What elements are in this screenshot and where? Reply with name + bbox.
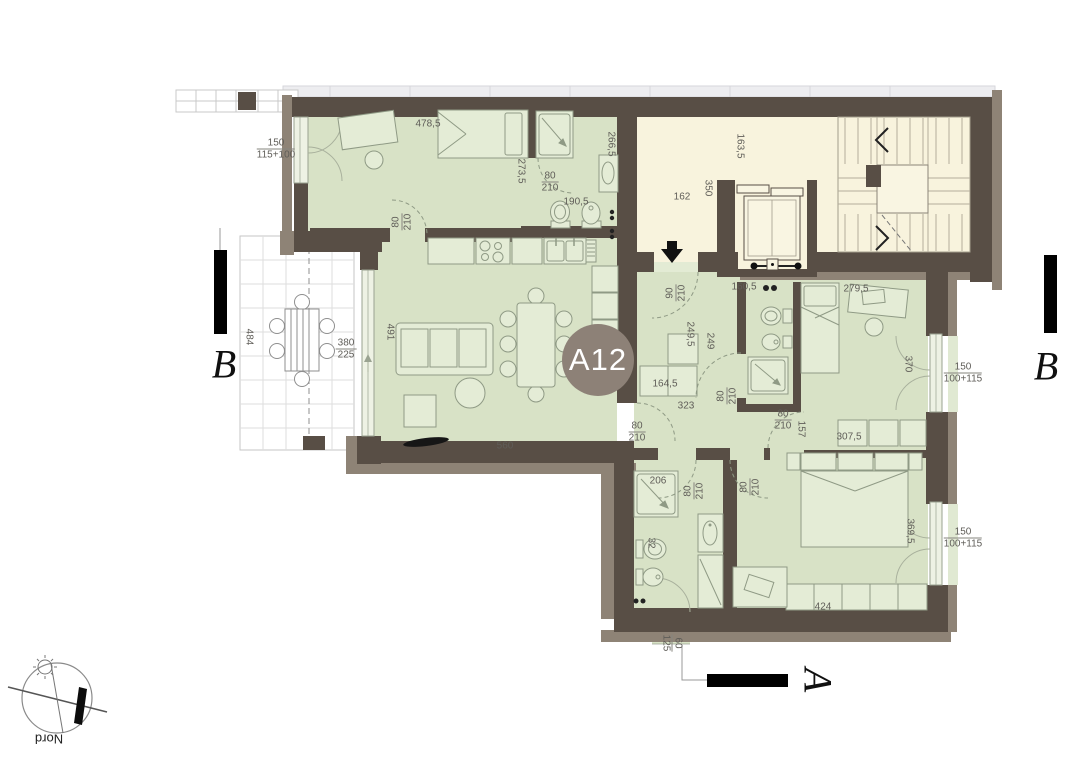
stove-icon	[476, 238, 510, 264]
single-bed-icon	[801, 283, 839, 373]
wardrobe-icon	[786, 584, 927, 610]
chair-icon	[365, 151, 383, 169]
dim-door-living: 80210	[629, 421, 646, 444]
dim-bed2-cabinet: 307,5	[836, 432, 861, 443]
dim-door-entry: 90210	[665, 285, 688, 302]
dim-bed3-depth: 369,5	[905, 518, 916, 543]
dim-living-length: 491	[385, 324, 396, 341]
toilet-icon	[761, 307, 792, 325]
shower-icon	[536, 111, 573, 158]
dim-bed1-depth: 273,5	[516, 158, 527, 183]
sink-icon	[698, 514, 723, 552]
dim-door-bath2: 80210	[683, 483, 706, 500]
dim-window-left: 150115+100	[257, 138, 295, 161]
dim-corridor-length: 249,5	[685, 321, 696, 346]
dim-corridor-bottom: 323	[678, 401, 695, 412]
dim-door-bed2-w: 157	[796, 421, 807, 438]
elevator-icon	[737, 185, 803, 270]
dim-door-bed3: 80210	[739, 479, 762, 496]
roof-overhang	[283, 86, 995, 97]
section-marker-b-left: B	[212, 341, 236, 388]
section-marker-a-bottom: A	[795, 668, 842, 692]
dim-cabinet-length: 164,5	[652, 379, 677, 390]
balcony-grid	[176, 90, 298, 112]
dim-bath1-length: 266,5	[606, 131, 617, 156]
desk-icon	[733, 567, 787, 607]
bidet-icon	[636, 568, 663, 586]
shower-icon	[748, 357, 788, 394]
chair-icon	[865, 318, 883, 336]
dim-window-right2: 150100+115	[944, 527, 982, 550]
sink-icon	[599, 155, 618, 192]
dim-window-right1: 150100+115	[944, 362, 982, 385]
drainer-icon	[586, 240, 596, 262]
compass-label: Nord	[35, 732, 63, 747]
dim-bed1-width: 478,5	[415, 119, 440, 130]
double-bed-icon	[787, 453, 922, 547]
double-bed-icon	[438, 110, 528, 158]
side-table-icon	[455, 378, 485, 408]
sofa-icon	[396, 323, 493, 375]
dim-bath1-width: 190,5	[563, 197, 588, 208]
dim-door-bed2: 80210	[775, 409, 792, 432]
section-marker-b-right: B	[1034, 343, 1058, 390]
dim-bed2-width: 279,5	[843, 284, 868, 295]
dim-window-bottom: 60125	[661, 635, 684, 652]
dim-door-bath1c: 80210	[716, 388, 739, 405]
dim-wardrobe: 424	[815, 602, 832, 613]
dim-corridor-length2: 249	[705, 333, 716, 350]
compass-icon	[8, 655, 107, 733]
bidet-icon	[762, 334, 792, 350]
dim-window-right1-h: 370	[903, 356, 914, 373]
dim-living-width: 560	[497, 441, 514, 452]
cabinet-icon	[698, 555, 723, 608]
dim-hall-width: 162	[674, 192, 691, 203]
dim-hall-length: 163,5	[735, 133, 746, 158]
dim-bath2-width: 32	[646, 537, 657, 548]
pouf-icon	[404, 395, 436, 427]
kitchen-sink-icon	[544, 238, 586, 264]
unit-badge: A12	[562, 324, 634, 396]
dim-door-bath1: 80210	[542, 171, 559, 194]
dim-terrace-door: 380225	[336, 338, 357, 361]
dim-door-bed1: 80210	[391, 214, 414, 231]
dim-terrace-length: 484	[244, 329, 255, 346]
dim-hall-depth: 350	[703, 180, 714, 197]
dim-corridor-top: 160,5	[731, 282, 756, 293]
dim-shower2: 206	[650, 476, 667, 487]
floor-plan-canvas: 478,5 150115+100 266,5 273,5 80210 190,5…	[0, 0, 1076, 780]
plan-graphics	[0, 0, 1076, 780]
